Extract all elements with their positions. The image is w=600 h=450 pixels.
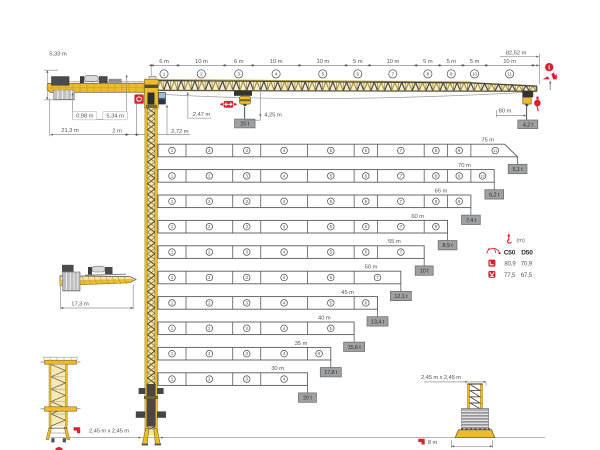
svg-text:10: 10 xyxy=(480,174,484,178)
svg-text:17,3 m: 17,3 m xyxy=(71,301,89,307)
svg-text:80,9: 80,9 xyxy=(504,261,516,267)
svg-text:35 m: 35 m xyxy=(295,341,308,347)
svg-text:5 m: 5 m xyxy=(423,59,433,65)
svg-text:11: 11 xyxy=(493,149,497,153)
svg-text:2: 2 xyxy=(200,72,203,77)
svg-text:50 m: 50 m xyxy=(365,265,378,271)
svg-text:67,5: 67,5 xyxy=(521,273,533,279)
svg-text:5 m: 5 m xyxy=(446,59,456,65)
svg-text:2 m: 2 m xyxy=(112,129,122,135)
svg-text:4: 4 xyxy=(275,72,278,77)
svg-text:12,1 t: 12,1 t xyxy=(394,294,408,300)
svg-text:82,52 m: 82,52 m xyxy=(506,51,527,57)
svg-text:21,3 m: 21,3 m xyxy=(61,128,79,134)
svg-text:7,4 t: 7,4 t xyxy=(466,218,477,224)
svg-text:17,8 t: 17,8 t xyxy=(324,370,338,376)
svg-text:75 m: 75 m xyxy=(481,138,494,144)
svg-text:2,72 m: 2,72 m xyxy=(171,129,189,135)
svg-text:2,47 m: 2,47 m xyxy=(193,112,211,118)
svg-text:77,5: 77,5 xyxy=(504,273,516,279)
svg-text:40 m: 40 m xyxy=(318,315,331,321)
svg-text:8 m: 8 m xyxy=(428,440,438,446)
svg-text:8: 8 xyxy=(427,72,430,77)
svg-text:5,33 m: 5,33 m xyxy=(49,51,67,57)
svg-text:(m): (m) xyxy=(516,238,525,244)
svg-text:1: 1 xyxy=(163,72,166,77)
svg-text:0,98 m: 0,98 m xyxy=(76,114,94,120)
svg-text:6 m: 6 m xyxy=(234,59,244,65)
svg-text:5 m: 5 m xyxy=(353,59,363,65)
svg-text:70 m: 70 m xyxy=(458,163,471,169)
svg-text:20 t: 20 t xyxy=(240,122,249,128)
svg-text:4,25 m: 4,25 m xyxy=(264,113,282,119)
svg-text:C50: C50 xyxy=(504,249,516,256)
svg-text:13,4 t: 13,4 t xyxy=(371,319,385,325)
svg-text:10 m: 10 m xyxy=(270,59,283,65)
svg-text:5 m: 5 m xyxy=(470,59,480,65)
svg-text:5,34 m: 5,34 m xyxy=(106,114,124,120)
svg-text:10: 10 xyxy=(472,71,477,76)
svg-text:30 m: 30 m xyxy=(271,366,284,372)
svg-text:45 m: 45 m xyxy=(341,290,354,296)
svg-text:i: i xyxy=(548,65,550,72)
svg-text:5,1 t: 5,1 t xyxy=(513,167,524,173)
svg-text:6,2 t: 6,2 t xyxy=(489,192,500,198)
svg-text:5: 5 xyxy=(321,72,324,77)
svg-text:55 m: 55 m xyxy=(388,239,401,245)
svg-text:11: 11 xyxy=(507,71,512,76)
svg-text:6 m: 6 m xyxy=(159,59,169,65)
svg-text:10 m: 10 m xyxy=(195,59,208,65)
svg-text:3: 3 xyxy=(237,72,240,77)
svg-text:8,9 t: 8,9 t xyxy=(442,243,453,249)
svg-text:6: 6 xyxy=(357,72,360,77)
svg-text:65 m: 65 m xyxy=(435,188,448,194)
svg-text:70,9: 70,9 xyxy=(521,261,533,267)
svg-text:10 m: 10 m xyxy=(386,59,399,65)
svg-text:7: 7 xyxy=(392,72,395,77)
svg-text:9: 9 xyxy=(450,72,453,77)
svg-text:80 m: 80 m xyxy=(499,109,512,115)
svg-text:2,45 m x 2,45 m: 2,45 m x 2,45 m xyxy=(89,429,129,435)
svg-text:2,45 m x 2,45 m: 2,45 m x 2,45 m xyxy=(421,375,461,381)
svg-text:20 t: 20 t xyxy=(303,396,312,402)
svg-text:15,6 t: 15,6 t xyxy=(348,345,362,351)
svg-text:60 m: 60 m xyxy=(411,214,424,220)
svg-text:4,2 t: 4,2 t xyxy=(523,122,534,128)
svg-text:10 t: 10 t xyxy=(420,269,429,275)
svg-text:D50: D50 xyxy=(521,249,533,256)
svg-text:10 m: 10 m xyxy=(503,59,516,65)
svg-text:10 m: 10 m xyxy=(316,59,329,65)
